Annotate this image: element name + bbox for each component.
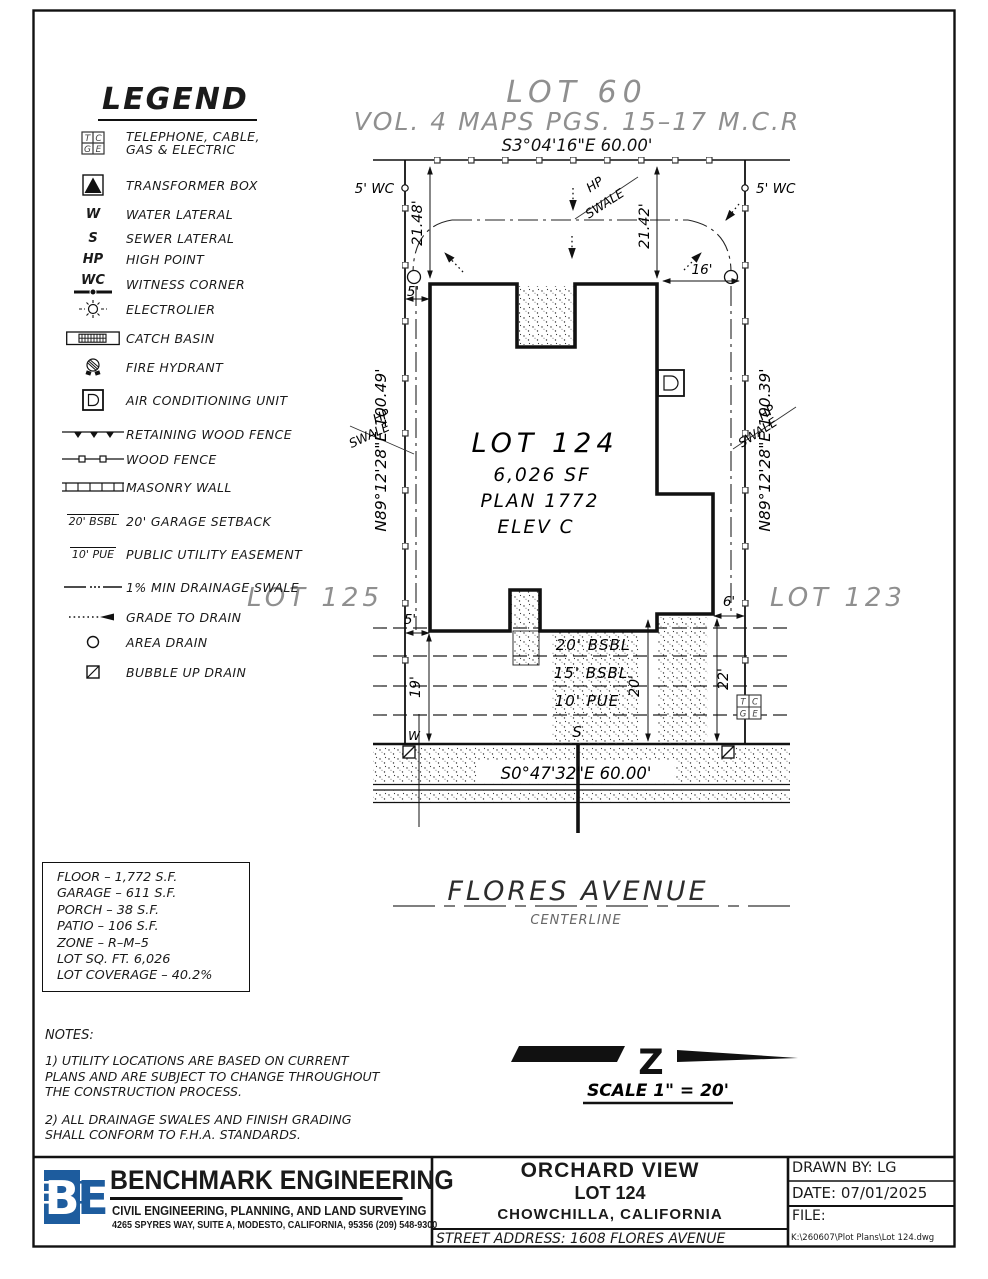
hp-top: HP — [583, 173, 606, 195]
bsbl-20-label: 20' BSBL — [556, 636, 630, 654]
north-arrow: Z — [511, 1043, 798, 1083]
porch-hatch — [518, 286, 574, 345]
sewer-lateral-symbol: S — [68, 231, 118, 246]
file-path: K:\260607\Plot Plans\Lot 124.dwg — [791, 1233, 934, 1243]
legend-row: FIRE HYDRANT — [68, 354, 368, 380]
svg-text:T: T — [740, 698, 746, 708]
catch-basin-icon — [68, 331, 118, 346]
area-drain — [408, 271, 421, 284]
bearing-left: N89°12'28"E 100.49' — [372, 368, 390, 531]
legend-row: W WATER LATERAL — [68, 201, 368, 227]
project-city: CHOWCHILLA, CALIFORNIA — [432, 1206, 788, 1223]
notes-section: NOTES: 1) UTILITY LOCATIONS ARE BASED ON… — [45, 1028, 390, 1155]
lot124-label: LOT 124 — [471, 428, 618, 459]
witness-corner — [402, 185, 408, 191]
legend-label: AREA DRAIN — [126, 636, 208, 649]
bearing-bottom: S0°47'32"E 60.00' — [501, 764, 652, 783]
tcge-box: T C G E — [737, 695, 761, 720]
dim-19: 19' — [408, 676, 424, 698]
legend-label: AIR CONDITIONING UNIT — [126, 394, 288, 407]
bsbl-15-label: 15' BSBL — [554, 664, 628, 682]
legend-label: GRADE TO DRAIN — [126, 611, 241, 624]
drainage-swale-icon — [68, 583, 118, 591]
company-tagline: CIVIL ENGINEERING, PLANNING, AND LAND SU… — [112, 1203, 426, 1218]
legend-label: WITNESS CORNER — [126, 278, 245, 291]
legend-row: GRADE TO DRAIN — [68, 604, 368, 630]
svg-text:Z: Z — [638, 1043, 663, 1083]
bearing-right: N89°12'28"E 100.39' — [756, 368, 774, 531]
stat-line: GARAGE – 611 S.F. — [57, 886, 243, 902]
ac-unit-icon — [68, 389, 118, 411]
water-lateral-symbol: W — [68, 207, 118, 222]
dim-6: 6' — [723, 594, 735, 610]
legend-label: MASONRY WALL — [126, 481, 232, 494]
witness-corner-icon: WC — [68, 273, 118, 296]
legend-row: AREA DRAIN — [68, 629, 368, 655]
water-lateral-label: W — [408, 729, 421, 743]
legend-label: CATCH BASIN — [126, 332, 215, 345]
pue-symbol: 10' PUE — [68, 547, 118, 561]
lot123-label: LOT 123 — [770, 583, 906, 613]
project-name: ORCHARD VIEW — [432, 1159, 788, 1183]
dim-2148: 21.48' — [410, 200, 426, 246]
drawn-by: DRAWN BY: LG — [792, 1160, 896, 1176]
svg-text:E: E — [77, 1171, 108, 1225]
dim-5-bot: 5' — [404, 612, 416, 628]
legend: LEGEND TCGE TELEPHONE, CABLE,GAS & ELECT… — [68, 82, 368, 121]
pue-10-label: 10' PUE — [555, 692, 619, 710]
fire-hydrant-icon — [68, 357, 118, 377]
legend-row: AIR CONDITIONING UNIT — [68, 387, 368, 413]
legend-label: SEWER LATERAL — [126, 232, 234, 245]
project-title-block: ORCHARD VIEW LOT 124 CHOWCHILLA, CALIFOR… — [432, 1159, 788, 1223]
legend-row: BUBBLE UP DRAIN — [68, 659, 368, 685]
legend-label: BUBBLE UP DRAIN — [126, 666, 246, 679]
legend-row: 1% MIN DRAINAGE SWALE — [68, 574, 368, 600]
stat-line: FLOOR – 1,772 S.F. — [57, 870, 243, 886]
witness-corner — [742, 185, 748, 191]
legend-row: MASONRY WALL — [68, 474, 368, 500]
svg-text:G: G — [84, 145, 91, 155]
svg-text:C: C — [95, 134, 102, 144]
company-name: BENCHMARK ENGINEERING — [110, 1165, 403, 1200]
stat-line: ZONE – R–M–5 — [57, 936, 243, 952]
scale-label: SCALE 1" = 20' — [587, 1081, 729, 1101]
legend-label: WATER LATERAL — [126, 208, 233, 221]
street-name: FLORES AVENUE — [447, 876, 708, 907]
garage-setback-symbol: 20' BSBL — [68, 514, 118, 528]
retaining-wood-fence-icon — [68, 429, 118, 439]
svg-text:E: E — [752, 710, 758, 720]
grade-to-drain-icon — [68, 612, 118, 622]
svg-text:C: C — [752, 698, 758, 708]
lot60-label: LOT 60 — [506, 75, 647, 110]
dim-2142: 21.42' — [637, 203, 653, 249]
legend-label: 1% MIN DRAINAGE SWALE — [126, 581, 299, 594]
centerline-label: CENTERLINE — [530, 913, 621, 928]
wood-fence-icon — [68, 454, 118, 464]
lot-area: 6,026 SF — [493, 465, 590, 486]
legend-label: TRANSFORMER BOX — [126, 179, 258, 192]
wc-right-label: 5' WC — [756, 181, 796, 197]
dim-20: 20' — [627, 675, 643, 697]
transformer-box-icon — [68, 174, 118, 196]
company-logo: B E — [44, 1168, 108, 1230]
legend-label: RETAINING WOOD FENCE — [126, 428, 292, 441]
legend-label: ELECTROLIER — [126, 303, 215, 316]
legend-row: WOOD FENCE — [68, 446, 368, 472]
area-summary-box: FLOOR – 1,772 S.F. GARAGE – 611 S.F. POR… — [42, 862, 250, 992]
grade-arrows — [445, 188, 739, 272]
plan-number: PLAN 1772 — [481, 491, 600, 512]
project-lot: LOT 124 — [432, 1183, 788, 1204]
bearing-top: S3°04'16"E 60.00' — [502, 136, 653, 155]
legend-label: HIGH POINT — [126, 253, 204, 266]
svg-text:G: G — [740, 710, 747, 720]
patio-extension-hatch — [513, 631, 539, 665]
tcge-icon: TCGE — [68, 131, 118, 155]
driveway-hatch — [658, 617, 708, 744]
street-address: STREET ADDRESS: 1608 FLORES AVENUE — [436, 1231, 786, 1247]
legend-row: CATCH BASIN — [68, 325, 368, 351]
area-drain-icon — [68, 634, 118, 650]
high-point-symbol: HP — [68, 252, 118, 267]
legend-label: 20' GARAGE SETBACK — [126, 515, 271, 528]
legend-label: FIRE HYDRANT — [126, 361, 223, 374]
electrolier-icon — [68, 299, 118, 319]
legend-row: TCGE TELEPHONE, CABLE,GAS & ELECTRIC — [68, 130, 368, 156]
stat-line: PATIO – 106 S.F. — [57, 919, 243, 935]
ac-unit-symbol — [658, 370, 684, 396]
legend-label: PUBLIC UTILITY EASEMENT — [126, 548, 302, 561]
stat-line: LOT COVERAGE – 40.2% — [57, 968, 243, 984]
maps-reference: VOL. 4 MAPS PGS. 15–17 M.C.R — [354, 107, 801, 136]
dim-16: 16' — [692, 262, 713, 278]
legend-row: TRANSFORMER BOX — [68, 172, 368, 198]
area-drain — [725, 271, 738, 284]
masonry-wall-icon — [68, 481, 118, 493]
drawing-date: DATE: 07/01/2025 — [792, 1184, 927, 1202]
legend-label: WOOD FENCE — [126, 453, 217, 466]
legend-row: 20' BSBL 20' GARAGE SETBACK — [68, 508, 368, 534]
legend-title: LEGEND — [98, 82, 257, 121]
svg-text:E: E — [96, 145, 102, 155]
plot-plan-sheet: T C G E Z LOT 60 — [0, 0, 988, 1279]
stat-line: PORCH – 38 S.F. — [57, 903, 243, 919]
legend-row: RETAINING WOOD FENCE — [68, 421, 368, 447]
patio-hatch — [512, 592, 539, 630]
bubble-up-drain-icon — [68, 664, 118, 680]
elevation: ELEV C — [497, 517, 574, 538]
file-label: FILE: — [792, 1208, 826, 1224]
note-1: 1) UTILITY LOCATIONS ARE BASED ON CURREN… — [45, 1053, 390, 1100]
svg-text:B: B — [44, 1171, 79, 1225]
dim-22: 22' — [716, 668, 732, 690]
dim-5-top: 5' — [407, 284, 419, 300]
note-2: 2) ALL DRAINAGE SWALES AND FINISH GRADIN… — [45, 1112, 390, 1143]
legend-row: 10' PUE PUBLIC UTILITY EASEMENT — [68, 541, 368, 567]
sewer-lateral-label: S — [572, 723, 582, 741]
stat-line: LOT SQ. FT. 6,026 — [57, 952, 243, 968]
notes-title: NOTES: — [45, 1028, 390, 1043]
company-address: 4265 SPYRES WAY, SUITE A, MODESTO, CALIF… — [112, 1220, 437, 1231]
legend-row: ELECTROLIER — [68, 296, 368, 322]
